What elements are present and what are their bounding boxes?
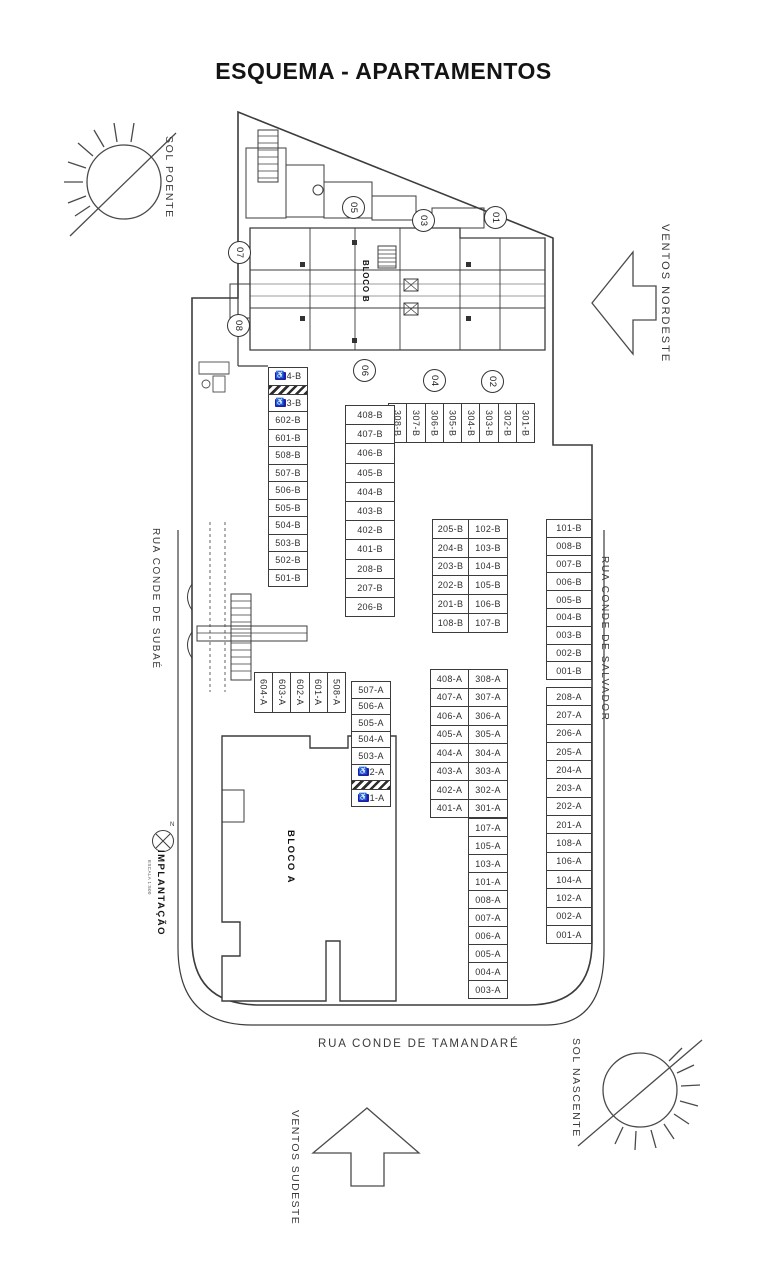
parking-column-a-right: 208-A207-A206-A205-A204-A203-A202-A201-A… <box>546 687 592 944</box>
parking-column-b-2: 408-B407-B406-B405-B404-B403-B402-B401-B… <box>345 405 395 617</box>
parking-stall: 007-A <box>468 908 508 927</box>
parking-stall: 206-B <box>345 597 395 617</box>
site-drawing <box>0 0 767 1280</box>
parking-stall: 202-A <box>546 797 592 816</box>
parking-column-b-right: 101-B008-B007-B006-B005-B004-B003-B002-B… <box>546 519 592 680</box>
parking-stall: 507-B <box>268 464 308 483</box>
parking-column-a-3: 107-A105-A103-A101-A008-A007-A006-A005-A… <box>468 818 508 999</box>
parking-stall: 001-A <box>546 925 592 944</box>
parking-stall: 004-A <box>468 962 508 981</box>
parking-row-b-301-308: 308-B307-B306-B305-B304-B303-B302-B301-B <box>388 403 535 443</box>
parking-stall: 601-B <box>268 429 308 448</box>
parking-stall: 106-A <box>546 852 592 871</box>
street-salvador-label: RUA CONDE DE SALVADOR <box>599 556 610 721</box>
parking-stall: 306-B <box>425 403 444 443</box>
parking-stall: 503-A <box>351 747 391 765</box>
utility-detail <box>199 362 229 392</box>
parking-stall: 208-B <box>345 559 395 579</box>
parking-stall: 206-A <box>546 724 592 743</box>
accessible-parking-icon: ♿ <box>358 768 369 776</box>
parking-stall: 501-B <box>268 569 308 588</box>
parking-stall: 107-B <box>468 613 508 633</box>
scale-label: ESCALA 1:500 <box>147 860 152 895</box>
parking-stall: 208-A <box>546 687 592 706</box>
parking-stall: 404-A <box>430 743 469 763</box>
parking-stall: 001-B <box>546 661 592 680</box>
parking-stall: 203-A <box>546 778 592 797</box>
site-plan: ESQUEMA - APARTAMENTOS SOL POENTE VENTOS… <box>0 0 767 1280</box>
bloco-b-floorplan <box>230 130 545 350</box>
parking-stall: 308-A <box>468 669 508 689</box>
parking-stall: 002-B <box>546 644 592 663</box>
parking-stall: 004-B <box>546 608 592 627</box>
parking-stall: 104-A <box>546 870 592 889</box>
north-symbol <box>153 831 174 852</box>
parking-stall: 008-B <box>546 537 592 556</box>
parking-stall: 504-A <box>351 731 391 749</box>
implantacao-label: IMPLANTAÇÃO <box>155 850 166 936</box>
parking-stall-accessible: ♿4-B <box>268 367 308 386</box>
parking-column-b-3-left: 205-B204-B203-B202-B201-B108-B <box>432 519 469 633</box>
parking-stall: 305-B <box>443 403 462 443</box>
parking-stall: 506-A <box>351 698 391 716</box>
parking-stall: 405-A <box>430 725 469 745</box>
parking-stall: 207-B <box>345 578 395 598</box>
parking-stall: 103-B <box>468 538 508 558</box>
parking-stall: 305-A <box>468 725 508 745</box>
parking-column-a-2-left: 408-A407-A406-A405-A404-A403-A402-A401-A <box>430 669 469 818</box>
unit-marker-03-text: 03 <box>418 215 429 227</box>
parking-stall-accessible: ♿3-B <box>268 394 308 413</box>
parking-stall: 602-B <box>268 411 308 430</box>
parking-stall: 306-A <box>468 706 508 726</box>
parking-column-b-left: ♿4-B♿3-B602-B601-B508-B507-B506-B505-B50… <box>268 367 308 587</box>
unit-marker-08-text: 08 <box>233 320 244 332</box>
parking-stall: 103-A <box>468 854 508 873</box>
parking-stall: 302-B <box>498 403 517 443</box>
unit-marker-06: 06 <box>353 359 376 382</box>
parking-stall: 003-A <box>468 980 508 999</box>
unit-marker-03: 03 <box>412 209 435 232</box>
parking-stall: 102-B <box>468 519 508 539</box>
parking-stall: 107-A <box>468 818 508 837</box>
parking-stall: 303-B <box>479 403 498 443</box>
parking-stall: 504-B <box>268 516 308 535</box>
parking-stall: 406-B <box>345 443 395 463</box>
parking-stall: 506-B <box>268 481 308 500</box>
parking-stall: 602-A <box>290 672 309 713</box>
parking-stall: 205-B <box>432 519 469 539</box>
parking-stall: 402-B <box>345 520 395 540</box>
accessible-parking-icon: ♿ <box>275 372 286 380</box>
parking-stall: 205-A <box>546 742 592 761</box>
parking-stall: 101-B <box>546 519 592 538</box>
parking-stall: 403-B <box>345 501 395 521</box>
street-subae-label: RUA CONDE DE SUBAÉ <box>150 528 161 670</box>
parking-stall: 601-A <box>309 672 328 713</box>
parking-stall: 006-B <box>546 572 592 591</box>
parking-stall: 002-A <box>546 907 592 926</box>
sol-poente-label: SOL POENTE <box>163 136 175 219</box>
unit-marker-05-text: 05 <box>348 202 359 214</box>
unit-marker-04-text: 04 <box>429 375 440 387</box>
parking-stall: 502-B <box>268 551 308 570</box>
unit-marker-02-text: 02 <box>487 376 498 388</box>
parking-stall: 508-A <box>327 672 346 713</box>
unit-marker-07-text: 07 <box>234 247 245 259</box>
parking-stall: 507-A <box>351 681 391 699</box>
parking-stall: 405-B <box>345 463 395 483</box>
parking-stall: 108-A <box>546 833 592 852</box>
wind-arrow-sudeste <box>313 1108 419 1186</box>
parking-stall: 101-A <box>468 872 508 891</box>
parking-stall: 203-B <box>432 557 469 577</box>
parking-stall: 005-A <box>468 944 508 963</box>
parking-stall: 207-A <box>546 705 592 724</box>
bloco-b-label: BLOCO B <box>361 260 370 303</box>
parking-stall: 503-B <box>268 534 308 553</box>
parking-stall: 105-A <box>468 836 508 855</box>
parking-stall: 202-B <box>432 575 469 595</box>
wind-arrow-nordeste <box>592 252 656 354</box>
parking-stall: 401-B <box>345 539 395 559</box>
parking-stall: 505-A <box>351 714 391 732</box>
parking-stall: 404-B <box>345 482 395 502</box>
parking-stall: 204-B <box>432 538 469 558</box>
parking-stall-accessible: ♿2-A <box>351 764 391 782</box>
sol-nascente-label: SOL NASCENTE <box>570 1038 582 1138</box>
parking-stall: 106-B <box>468 594 508 614</box>
unit-marker-01: 01 <box>484 206 507 229</box>
parking-stall: 403-A <box>430 762 469 782</box>
unit-marker-04: 04 <box>423 369 446 392</box>
parking-stall: 407-A <box>430 688 469 708</box>
accessible-parking-icon: ♿ <box>358 794 369 802</box>
parking-stall: 201-A <box>546 815 592 834</box>
page-title: ESQUEMA - APARTAMENTOS <box>0 58 767 85</box>
parking-stall: 005-B <box>546 590 592 609</box>
parking-stall: 007-B <box>546 555 592 574</box>
unit-marker-05: 05 <box>342 196 365 219</box>
north-letter: N <box>170 822 174 828</box>
ventos-sudeste-label: VENTOS SUDESTE <box>289 1110 301 1225</box>
parking-stall: 603-A <box>272 672 291 713</box>
ventos-nordeste-label: VENTOS NORDESTE <box>659 224 671 363</box>
parking-stall: 304-B <box>461 403 480 443</box>
parking-stall: 304-A <box>468 743 508 763</box>
parking-stall: 105-B <box>468 575 508 595</box>
parking-stall: 508-B <box>268 446 308 465</box>
parking-row-a-top: 604-A603-A602-A601-A508-A <box>254 672 346 713</box>
parking-stall: 307-B <box>406 403 425 443</box>
parking-stall: 108-B <box>432 613 469 633</box>
parking-stall: 406-A <box>430 706 469 726</box>
parking-stall: 408-B <box>345 405 395 425</box>
unit-marker-01-text: 01 <box>490 212 501 224</box>
parking-stall: 303-A <box>468 762 508 782</box>
unit-marker-08: 08 <box>227 314 250 337</box>
unit-marker-07: 07 <box>228 241 251 264</box>
parking-stall: 604-A <box>254 672 273 713</box>
accessible-parking-icon: ♿ <box>275 399 286 407</box>
parking-stall: 301-B <box>516 403 535 443</box>
parking-stall: 505-B <box>268 499 308 518</box>
street-tamandare-label: RUA CONDE DE TAMANDARÉ <box>318 1038 519 1050</box>
parking-column-a-2-right: 308-A307-A306-A305-A304-A303-A302-A301-A <box>468 669 508 818</box>
parking-stall: 407-B <box>345 424 395 444</box>
parking-column-b-3-right: 102-B103-B104-B105-B106-B107-B <box>468 519 508 633</box>
parking-stall: 003-B <box>546 626 592 645</box>
parking-stall: 301-A <box>468 799 508 819</box>
parking-stall: 006-A <box>468 926 508 945</box>
parking-stall: 402-A <box>430 780 469 800</box>
parking-stall: 102-A <box>546 888 592 907</box>
parking-stall: 408-A <box>430 669 469 689</box>
sun-symbol-nascente <box>578 1040 702 1150</box>
parking-stall: 104-B <box>468 557 508 577</box>
parking-stall: 008-A <box>468 890 508 909</box>
sun-symbol-poente <box>64 123 176 236</box>
parking-stall: 302-A <box>468 780 508 800</box>
parking-stall: 307-A <box>468 688 508 708</box>
parking-column-a-left: 507-A506-A505-A504-A503-A♿2-A♿1-A <box>351 681 391 807</box>
parking-stall: 201-B <box>432 594 469 614</box>
bloco-a-label: BLOCO A <box>285 830 296 884</box>
parking-stall: 204-A <box>546 760 592 779</box>
unit-marker-02: 02 <box>481 370 504 393</box>
parking-stall: 401-A <box>430 799 469 819</box>
unit-marker-06-text: 06 <box>359 365 370 377</box>
parking-stall-accessible: ♿1-A <box>351 789 391 807</box>
